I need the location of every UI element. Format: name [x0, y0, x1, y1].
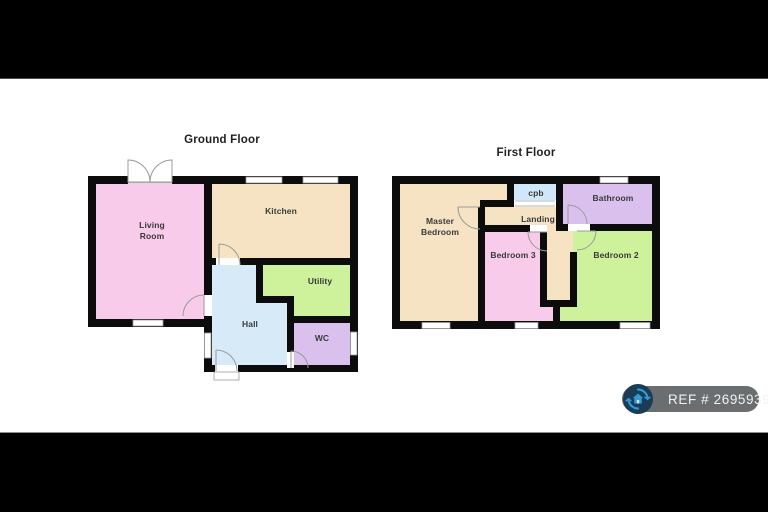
ground-floor-plan: Ground Floor — [88, 134, 358, 380]
bathroom-window — [600, 177, 628, 183]
kitchen-window-1 — [246, 177, 282, 183]
reference-number: REF # 2695939 — [668, 392, 768, 407]
kitchen-door-gap — [216, 258, 240, 265]
master-bedroom-window — [422, 323, 450, 329]
bathroom-label: Bathroom — [593, 193, 634, 203]
living-room-area — [90, 180, 212, 325]
front-door-threshold — [214, 372, 239, 380]
front-door-gap — [215, 365, 238, 372]
landing-label: Landing — [521, 214, 555, 224]
bottom-letterbox-bar — [0, 432, 768, 512]
reference-badge: REF # 2695939 — [622, 386, 759, 412]
living-room-door-gap — [204, 295, 212, 316]
bedroom2-window — [620, 323, 650, 329]
living-room-window — [133, 320, 163, 326]
utility-label: Utility — [308, 276, 332, 286]
first-floor-plan: First Floor — [392, 147, 660, 329]
living-room-label-2: Room — [140, 231, 165, 241]
bedroom3-label: Bedroom 3 — [490, 250, 535, 260]
wc-window — [351, 332, 358, 355]
master-bedroom-label: Master — [426, 216, 455, 226]
first-floor-title: First Floor — [496, 147, 555, 159]
ground-floor-title: Ground Floor — [184, 134, 260, 146]
wc-label: WC — [315, 333, 329, 343]
floorplan-page: Ground Floor — [0, 0, 768, 512]
cpb-label: cpb — [528, 188, 543, 198]
bathroom-area — [560, 180, 656, 227]
hall-window — [205, 333, 212, 358]
bedroom2-label: Bedroom 2 — [593, 250, 638, 260]
master-bedroom-label-2: Bedroom — [421, 227, 459, 237]
bedroom3-window — [515, 323, 538, 329]
hall-label: Hall — [242, 319, 258, 329]
kitchen-window-2 — [303, 177, 338, 183]
bathroom-door-gap — [568, 224, 590, 231]
house-circular-arrows-icon — [623, 384, 653, 414]
wc-area — [287, 316, 355, 370]
kitchen-label: Kitchen — [265, 206, 297, 216]
kitchen-area — [205, 180, 355, 262]
bedroom3-door-gap — [530, 225, 547, 232]
living-room-label: Living — [139, 220, 165, 230]
landing-corridor-area — [544, 225, 573, 303]
